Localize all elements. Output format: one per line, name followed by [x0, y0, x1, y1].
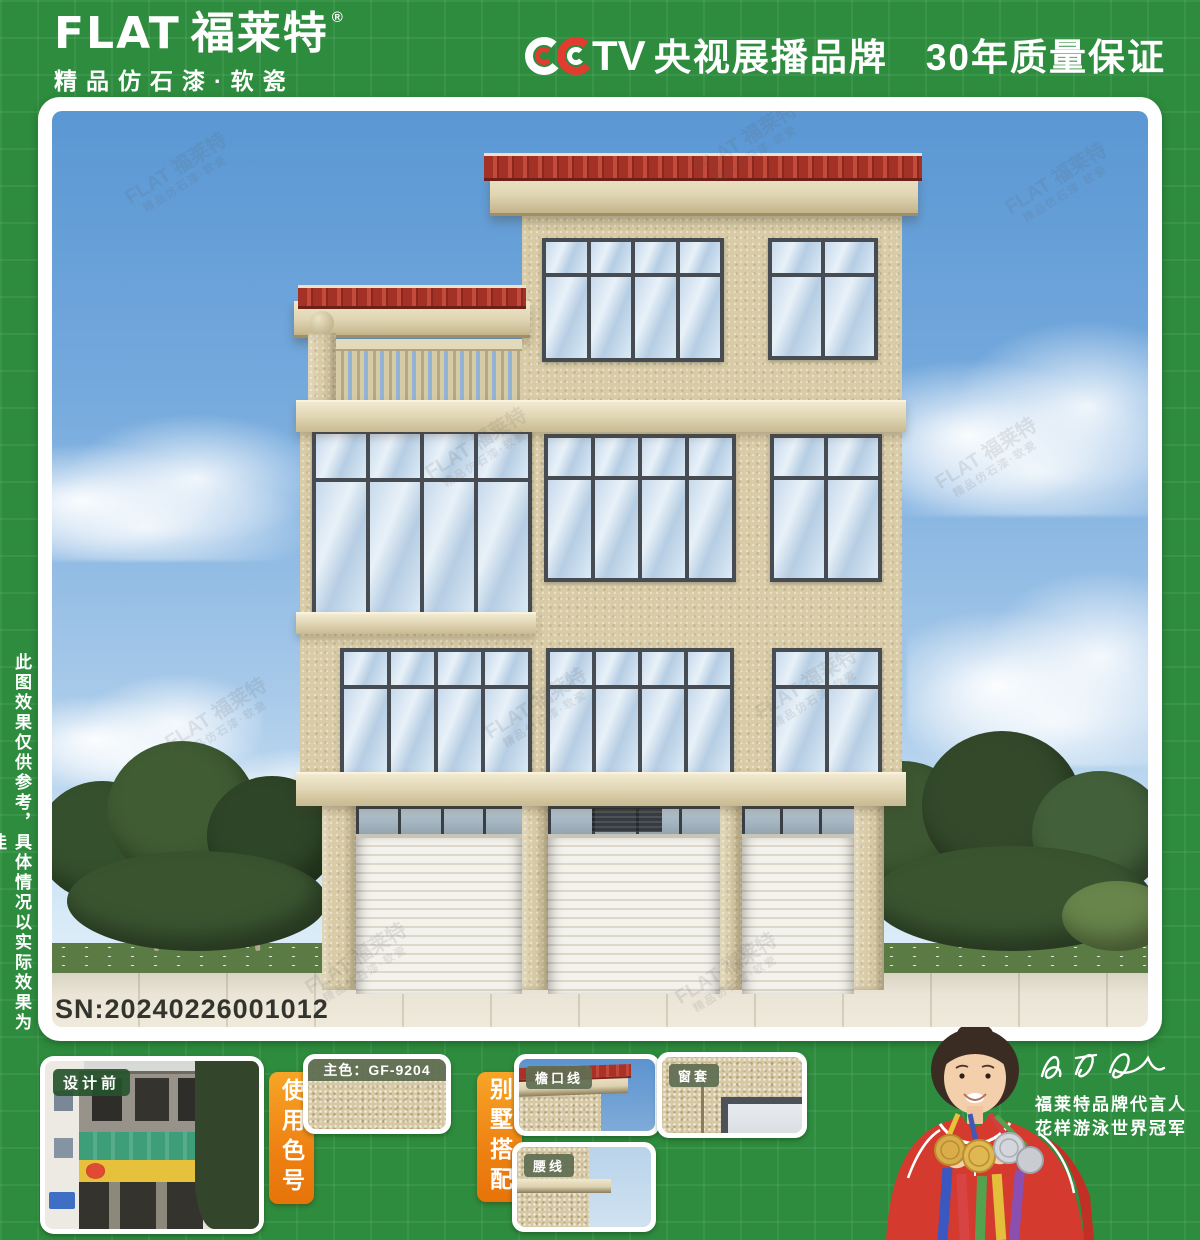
render-card: FLAT 福莱特精品仿石漆·软瓷 FLAT 福莱特精品仿石漆·软瓷 FLAT 福…: [38, 97, 1162, 1041]
window-pane: [344, 652, 387, 685]
photo-opening: [135, 1078, 169, 1122]
window-pane: [688, 689, 730, 774]
eave-line-card: 檐口线: [514, 1054, 660, 1136]
window-pane: [316, 482, 366, 618]
window-pane: [391, 652, 434, 685]
main-color-label: 主色：GF-9204: [308, 1059, 446, 1081]
transom-pane: [682, 809, 723, 837]
window-pane: [642, 652, 684, 685]
photo-pillar: [156, 1182, 167, 1229]
watermark: FLAT 福莱特精品仿石漆·软瓷: [121, 128, 238, 221]
registered-mark: ®: [332, 10, 345, 25]
window-pane: [828, 480, 878, 578]
window-pane: [424, 482, 474, 618]
window-pane: [689, 438, 732, 476]
window-pane: [825, 277, 874, 356]
window-pane: [438, 689, 481, 774]
signature-script: [1032, 1044, 1172, 1090]
window-pane: [370, 434, 420, 478]
cctv-logo-icon: TV: [522, 26, 654, 82]
tree-foliage: [67, 851, 327, 951]
window-pane: [828, 438, 878, 476]
photo-pillar: [109, 1182, 120, 1229]
waist-line-card: 腰线: [512, 1142, 656, 1232]
window-pane: [485, 652, 528, 685]
window-pane: [680, 242, 721, 273]
photo-blue-sign: [49, 1192, 75, 1209]
balustrade-balusters: [336, 351, 522, 405]
cornice-waistline: [296, 612, 536, 634]
window-pane: [370, 482, 420, 618]
main-color-swatch: 主色：GF-9204: [308, 1059, 446, 1129]
eave-line-swatch: 檐口线: [519, 1059, 655, 1131]
pier: [522, 802, 548, 990]
window-pane: [774, 438, 824, 476]
terrace-roof-tiles: [298, 285, 526, 309]
eave-line-label: 檐口线: [526, 1066, 592, 1089]
photo-window: [54, 1138, 73, 1158]
header-right: TV 央视展播品牌 30年质量保证: [522, 26, 1166, 82]
window-pane: [595, 480, 638, 578]
window: [542, 238, 724, 362]
before-photo-card: 设计前: [40, 1056, 264, 1234]
window-pane: [825, 242, 874, 273]
window-pane: [635, 242, 676, 273]
window-pane: [596, 652, 638, 685]
brand-logo: FLAT 福莱特 ® 精品仿石漆·软瓷: [54, 12, 345, 96]
waist-line-label: 腰线: [524, 1154, 574, 1177]
poster: FLAT 福莱特 ® 精品仿石漆·软瓷 TV 央视展播品牌 30年质量保证: [0, 0, 1200, 1240]
window-pane: [772, 277, 821, 356]
window-pane: [438, 652, 481, 685]
disclaimer-vertical: 此图效果仅供参考，具体情况以实际效果为佳: [6, 648, 34, 1038]
cctv-brand-text: 央视展播品牌: [654, 27, 888, 81]
transom-pane: [551, 809, 592, 837]
window-pane: [642, 689, 684, 774]
trees-left: [52, 741, 337, 966]
watermark: FLAT 福莱特精品仿石漆·软瓷: [1001, 138, 1118, 231]
window-pane: [688, 652, 730, 685]
window-casing-swatch: 窗套: [662, 1057, 802, 1133]
transom-pane: [486, 809, 525, 837]
window-pane: [596, 689, 638, 774]
casing-groove: [701, 1080, 704, 1133]
pier: [854, 802, 884, 990]
window-pane: [829, 689, 878, 774]
waist-line-swatch: 腰线: [517, 1147, 651, 1227]
brand-logo-en: FLAT: [54, 12, 181, 56]
window-pane: [548, 438, 591, 476]
serial-number: SN:20240226001012: [55, 994, 329, 1025]
air-conditioner: [592, 808, 662, 832]
guarantee-text: 30年质量保证: [926, 27, 1166, 81]
window-casing-card: 窗套: [657, 1052, 807, 1138]
photo-shopfront: [79, 1182, 203, 1229]
cornice: [296, 400, 906, 432]
window-pane: [548, 480, 591, 578]
waist-band: [517, 1179, 611, 1193]
cloud: [52, 411, 312, 561]
photo-sign-logo: [86, 1163, 105, 1178]
window-pane: [344, 689, 387, 774]
window-pane: [591, 277, 632, 358]
transom-pane: [444, 809, 483, 837]
spokesperson-title: 福莱特品牌代言人: [1035, 1090, 1187, 1115]
window-pane: [680, 277, 721, 358]
transom-pane: [745, 809, 780, 837]
transom-pane: [401, 809, 440, 837]
brand-logo-cn: 福莱特: [191, 12, 329, 56]
window-pane: [591, 242, 632, 273]
svg-text:TV: TV: [592, 32, 646, 79]
before-label: 设计前: [53, 1069, 130, 1096]
window-pane: [642, 480, 685, 578]
transom-pane: [822, 809, 857, 837]
balustrade-rail: [336, 339, 522, 351]
window-pane: [546, 242, 587, 273]
brand-tagline: 精品仿石漆·软瓷: [54, 62, 345, 96]
roller-shutter-door: [548, 834, 720, 994]
window-pane: [774, 480, 824, 578]
window-pane: [595, 438, 638, 476]
spokesperson-champion: 花样游泳世界冠军: [1035, 1114, 1187, 1139]
window-pane: [546, 277, 587, 358]
window: [768, 238, 878, 360]
cloud: [867, 316, 1148, 516]
window-pane: [316, 434, 366, 478]
main-color-card: 主色：GF-9204: [303, 1054, 451, 1134]
window-pane: [391, 689, 434, 774]
window: [770, 434, 882, 582]
pillar-finial: [310, 311, 334, 335]
before-photo: 设计前: [45, 1061, 259, 1229]
window-pane: [478, 482, 528, 618]
photo-safety-net: [79, 1132, 203, 1161]
window-casing-label: 窗套: [669, 1064, 719, 1087]
transom-pane: [359, 809, 398, 837]
window-pane: [772, 242, 821, 273]
window-pane: [642, 438, 685, 476]
photo-tree: [195, 1061, 259, 1229]
cornice-shopfront: [296, 772, 906, 806]
window-pane: [689, 480, 732, 578]
render-scene: FLAT 福莱特精品仿石漆·软瓷 FLAT 福莱特精品仿石漆·软瓷 FLAT 福…: [52, 111, 1148, 1027]
window: [544, 434, 736, 582]
transom-pane: [783, 809, 818, 837]
window-pane: [635, 277, 676, 358]
eave-wall: [519, 1092, 601, 1131]
casing-window: [721, 1097, 802, 1133]
